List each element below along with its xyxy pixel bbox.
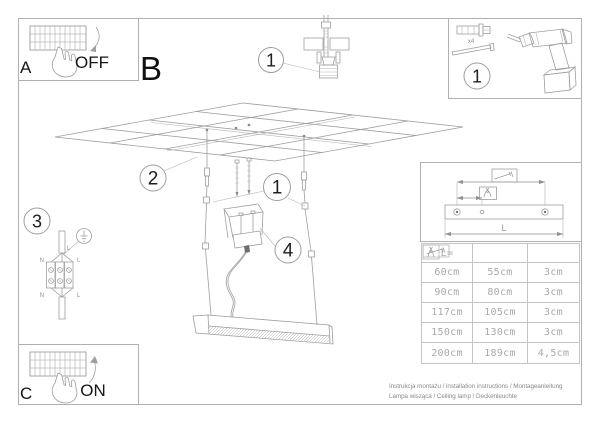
cell-length: 200cm <box>422 343 473 363</box>
switch-on-label: ON <box>80 381 106 400</box>
spec-header-screw <box>473 244 528 263</box>
callout-1-tools-number: 1 <box>472 67 482 87</box>
suspension-cable-left <box>203 131 212 315</box>
caption-line-1: Instrukcja montażu / installation instru… <box>389 382 589 392</box>
mounting-holes <box>454 209 548 215</box>
caption: Instrukcja montażu / installation instru… <box>389 382 589 402</box>
cell-length: 117cm <box>422 303 473 323</box>
callout-3-number: 3 <box>32 212 42 232</box>
cell-offset: 3cm <box>528 323 579 343</box>
tools-box-border <box>449 19 582 99</box>
cable-connector <box>244 245 250 253</box>
ceiling-slab-right <box>330 38 349 50</box>
fuse-panel-icon-c <box>30 352 86 376</box>
spec-table: L= 60cm 55cm 3cm 90cm 80cm 3cm 117cm 105… <box>421 243 580 364</box>
cell-screw-distance: 130cm <box>473 323 528 343</box>
canopy-box <box>224 204 263 248</box>
spec-header-pliers <box>528 244 579 263</box>
instruction-sheet: A OFF B 1 x4 <box>0 0 600 425</box>
step-a-label: A <box>20 58 32 77</box>
dimension-drawing: L <box>421 163 582 242</box>
table-row: 60cm 55cm 3cm <box>422 263 579 283</box>
step-c-box <box>19 345 139 405</box>
power-cord <box>228 252 247 317</box>
callout-2-number: 2 <box>148 169 159 190</box>
pressing-hand-icon-c <box>52 373 77 403</box>
pressing-hand-icon <box>52 47 77 77</box>
step-b-label: B <box>140 50 162 87</box>
wire-label-l-top: L <box>77 258 81 264</box>
step-c-label: C <box>20 384 32 403</box>
wall-plug-icon <box>457 24 490 36</box>
cell-length: 60cm <box>422 263 473 283</box>
switch-off-label: OFF <box>75 53 109 72</box>
wire-label-l-bottom: L <box>77 293 81 299</box>
arrow-down-icon <box>90 27 99 52</box>
cell-length: 90cm <box>422 283 473 303</box>
table-row: 117cm 105cm 3cm <box>422 303 579 323</box>
ceiling-slab-left <box>304 38 323 50</box>
suspension-set: 1 4 <box>203 131 318 325</box>
lamp-bar <box>193 315 333 344</box>
dowel-quantity-label: x4 <box>468 39 475 45</box>
table-row: 90cm 80cm 3cm <box>422 283 579 303</box>
callout-4-number: 4 <box>283 241 294 262</box>
step-a-panel: A OFF <box>19 19 139 81</box>
arrow-up-icon <box>89 356 98 383</box>
screw-icon <box>452 44 494 56</box>
suspension-cable-right <box>302 137 318 325</box>
table-row: 150cm 130cm 3cm <box>422 323 579 343</box>
drill-icon <box>507 29 576 93</box>
cell-length: 150cm <box>422 323 473 343</box>
ceiling-grid: 2 <box>55 103 463 191</box>
callout-1-suspension-number: 1 <box>272 178 283 199</box>
screw-icon-dim <box>492 169 517 182</box>
callout-1-anchor-number: 1 <box>266 51 276 71</box>
step-c-panel: C ON <box>19 345 139 405</box>
length-dimension-label: L <box>501 224 506 234</box>
spec-table-header: L= <box>422 244 579 263</box>
tools-box: x4 1 <box>449 19 582 99</box>
cell-offset: 3cm <box>528 283 579 303</box>
fuse-panel-icon <box>30 26 86 50</box>
cell-offset: 3cm <box>528 263 579 283</box>
caption-line-2: Lampa wisząca / Ceiling lamp / Deckenleu… <box>389 392 589 402</box>
wire-label-cable: L <box>67 246 71 252</box>
cell-screw-distance: 189cm <box>473 343 528 363</box>
ceiling-anchor-detail: 1 <box>259 15 350 78</box>
power-cord-2 <box>226 252 245 317</box>
table-row: 200cm 189cm 4,5cm <box>422 343 579 363</box>
terminal-block <box>47 231 74 319</box>
pliers-icon-dim <box>480 187 497 200</box>
wiring-detail: 3 L N L N L <box>24 208 92 319</box>
cell-offset: 4,5cm <box>528 343 579 363</box>
cell-screw-distance: 80cm <box>473 283 528 303</box>
cell-screw-distance: 105cm <box>473 303 528 323</box>
mounting-screws <box>235 158 251 197</box>
cell-screw-distance: 55cm <box>473 263 528 283</box>
pliers-icon <box>422 244 440 260</box>
cell-offset: 3cm <box>528 303 579 323</box>
wire-label-n-bottom: N <box>40 293 44 299</box>
wire-label-n-top: N <box>40 258 44 264</box>
